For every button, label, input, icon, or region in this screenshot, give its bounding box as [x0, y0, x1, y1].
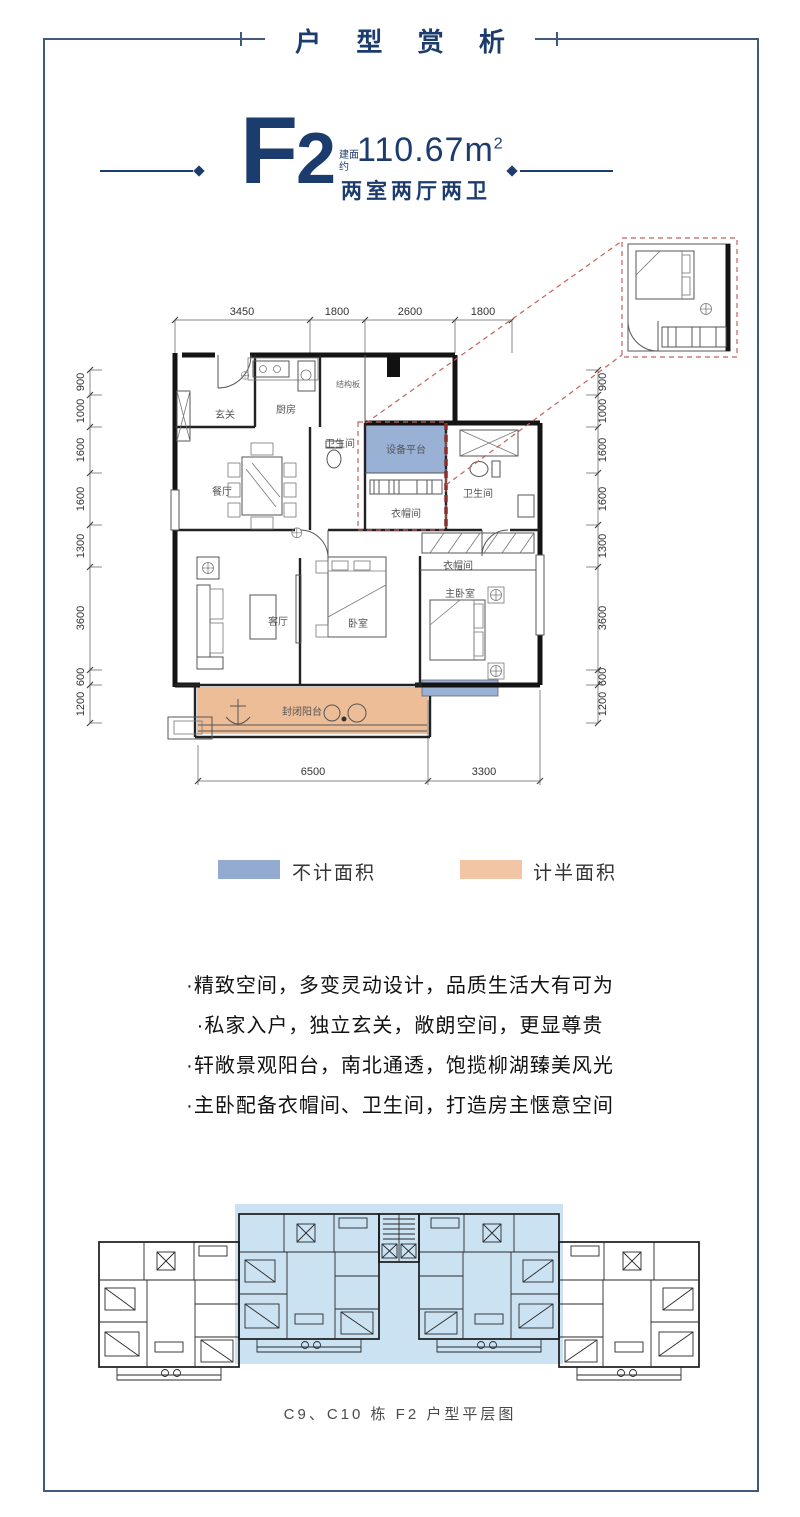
unit-type-name: F2 — [240, 104, 336, 199]
bedroom-furniture — [292, 528, 386, 637]
svg-text:3300: 3300 — [472, 766, 496, 778]
dimension-labels-top: 3450 1800 2600 1800 — [230, 306, 495, 318]
kitchen-fixtures — [248, 358, 318, 391]
zone-bay-window-no-area — [422, 680, 498, 696]
page-title: 户 型 赏 析 — [0, 22, 800, 59]
unit-outer-left — [99, 1242, 239, 1380]
dimension-labels-bottom: 6500 3300 — [301, 766, 496, 778]
legend-label-no-count: 不计面积 — [292, 858, 376, 885]
svg-text:3450: 3450 — [230, 306, 254, 318]
detail-callout — [358, 238, 737, 530]
master-closet-wardrobe — [422, 533, 534, 553]
svg-text:1300: 1300 — [75, 534, 87, 558]
living-room-furniture — [197, 557, 301, 669]
svg-text:1600: 1600 — [75, 438, 87, 462]
svg-text:1000: 1000 — [597, 399, 609, 423]
room-label-entry: 玄关 — [215, 408, 235, 421]
header-right-line — [520, 170, 613, 172]
room-label-master-bedroom: 主卧室 — [445, 587, 475, 600]
building-floor-plate — [85, 1198, 715, 1398]
room-label-dining: 餐厅 — [212, 485, 232, 498]
room-label-cloakroom-master: 衣帽间 — [443, 559, 473, 572]
room-label-bedroom: 卧室 — [348, 617, 368, 630]
bathroom-mid-fixtures — [241, 372, 342, 468]
svg-text:3600: 3600 — [75, 606, 87, 630]
dimension-labels-right: 900 1000 1600 1600 1300 3600 600 1200 — [597, 373, 609, 716]
room-label-cloakroom-mid: 衣帽间 — [391, 507, 421, 520]
svg-text:900: 900 — [597, 373, 609, 391]
svg-text:600: 600 — [75, 668, 87, 686]
legend-label-half-count: 计半面积 — [533, 858, 617, 885]
room-label-kitchen: 厨房 — [276, 403, 296, 416]
svg-text:1000: 1000 — [75, 399, 87, 423]
poster: 户 型 赏 析 F2 建面约 110.67m2 两室两厅两卫 — [0, 0, 800, 1517]
svg-text:1300: 1300 — [597, 534, 609, 558]
svg-text:1800: 1800 — [471, 306, 495, 318]
feature-item: ·私家入户，独立玄关，敞朗空间，更显尊贵 — [0, 1006, 800, 1046]
legend-swatch-no-count — [218, 860, 280, 879]
detail-room — [628, 244, 730, 351]
floor-plan-svg: 3450 1800 2600 1800 900 1000 1600 1600 1… — [70, 225, 750, 845]
svg-text:1800: 1800 — [325, 306, 349, 318]
room-label-equipment-platform: 设备平台 — [386, 443, 426, 456]
cloakroom-mid-wardrobe — [370, 480, 442, 494]
feature-list: ·精致空间，多变灵动设计，品质生活大有可为 ·私家入户，独立玄关，敞朗空间，更显… — [0, 966, 800, 1126]
svg-text:600: 600 — [597, 668, 609, 686]
legend-swatch-half-count — [460, 860, 522, 879]
room-label-structure-board: 结构板 — [336, 379, 360, 389]
svg-text:3600: 3600 — [597, 606, 609, 630]
master-bedroom-furniture — [430, 587, 504, 679]
header-left-line — [100, 170, 193, 172]
svg-text:1200: 1200 — [597, 692, 609, 716]
unit-outer-right — [559, 1242, 699, 1380]
room-label-bathroom-mid: 卫生间 — [325, 437, 355, 450]
building-floor-plate-svg — [85, 1198, 715, 1393]
room-label-living: 客厅 — [268, 615, 288, 628]
svg-text:1600: 1600 — [597, 438, 609, 462]
feature-item: ·轩敞景观阳台，南北通透，饱揽柳湖臻美风光 — [0, 1046, 800, 1086]
feature-item: ·主卧配备衣帽间、卫生间，打造房主惬意空间 — [0, 1086, 800, 1126]
svg-text:900: 900 — [75, 373, 87, 391]
room-label-bathroom-right: 卫生间 — [463, 487, 493, 500]
dimension-labels-left: 900 1000 1600 1600 1300 3600 600 1200 — [75, 373, 87, 716]
svg-text:1600: 1600 — [75, 487, 87, 511]
dining-table — [228, 443, 296, 529]
svg-text:2600: 2600 — [398, 306, 422, 318]
svg-text:1600: 1600 — [597, 487, 609, 511]
feature-item: ·精致空间，多变灵动设计，品质生活大有可为 — [0, 966, 800, 1006]
unit-area-value: 110.67m2 — [357, 131, 504, 170]
floor-plan: 3450 1800 2600 1800 900 1000 1600 1600 1… — [70, 225, 750, 850]
unit-layout-text: 两室两厅两卫 — [341, 175, 491, 205]
bathroom-right-fixtures — [460, 430, 534, 517]
svg-text:6500: 6500 — [301, 766, 325, 778]
svg-text:1200: 1200 — [75, 692, 87, 716]
room-label-balcony: 封闭阳台 — [282, 705, 322, 718]
building-plan-caption: C9、C10 栋 F2 户型平层图 — [0, 1403, 800, 1424]
